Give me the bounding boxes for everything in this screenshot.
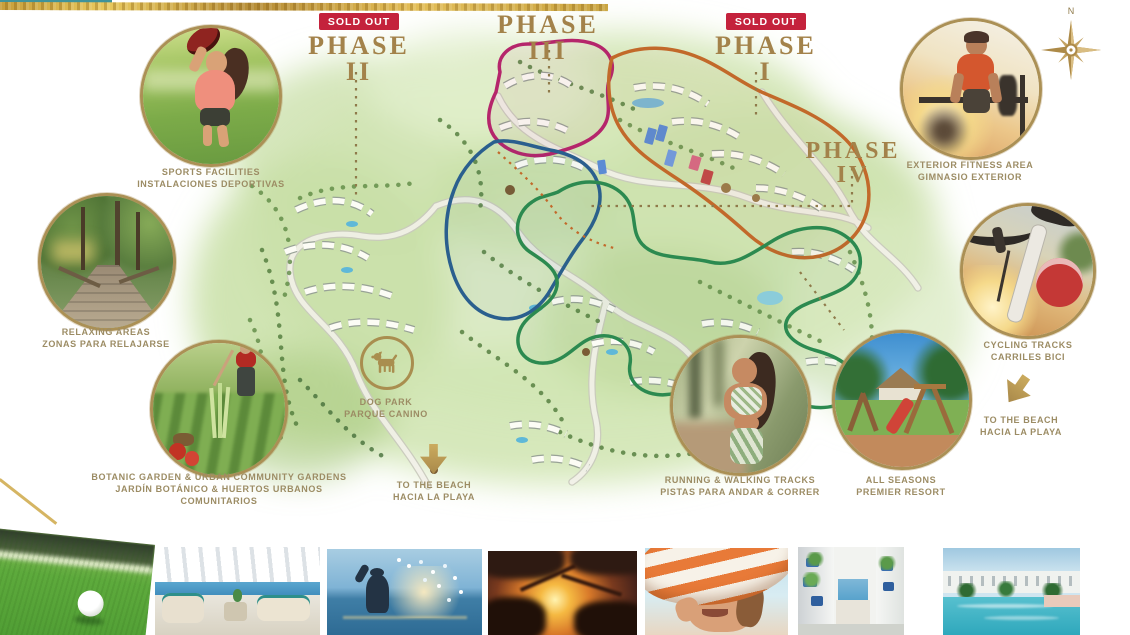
caption-sports-facilities: SPORTS FACILITIES INSTALACIONES DEPORTIV… xyxy=(101,166,321,190)
phase-2-title: PHASE II xyxy=(300,33,418,85)
resort-masterplan-page: SOLD OUT PHASE II PHASE III SOLD OUT PHA… xyxy=(0,0,1130,635)
gallery-photo-sea-splash xyxy=(327,549,482,635)
photo-exterior-fitness xyxy=(900,18,1042,160)
compass-north-label: N xyxy=(1068,6,1075,16)
caption-botanic-garden: BOTANIC GARDEN & URBAN COMMUNITY GARDENS… xyxy=(59,471,379,507)
gallery-photo-sea-view-terrace xyxy=(155,547,320,635)
phase-2-block: SOLD OUT PHASE II xyxy=(300,12,418,85)
caption-all-seasons-resort: ALL SEASONS PREMIER RESORT xyxy=(821,474,981,498)
photo-relaxing-areas xyxy=(38,193,176,331)
phase-1-block: SOLD OUT PHASE I xyxy=(708,12,824,85)
photo-sports-facilities xyxy=(140,25,282,167)
compass-rose: N xyxy=(1036,4,1106,84)
gallery-photo-golf-ball-on-green xyxy=(0,528,155,635)
caption-dog-park: DOG PARK PARQUE CANINO xyxy=(306,396,466,420)
photo-cycling-tracks xyxy=(960,203,1096,339)
gallery-photo-striped-sun-hat xyxy=(645,548,788,635)
caption-exterior-fitness: EXTERIOR FITNESS AREA GIMNASIO EXTERIOR xyxy=(870,159,1070,183)
caption-to-the-beach-right: TO THE BEACH HACIA LA PLAYA xyxy=(941,414,1101,438)
phase-3-block: PHASE III xyxy=(478,12,618,64)
photo-running-tracks xyxy=(670,335,811,476)
gallery-photo-resort-pool xyxy=(943,548,1080,635)
caption-running-tracks: RUNNING & WALKING TRACKS PISTAS PARA AND… xyxy=(640,474,840,498)
caption-to-the-beach-left: TO THE BEACH HACIA LA PLAYA xyxy=(354,479,514,503)
dog-icon xyxy=(370,349,404,377)
sold-out-badge-phase1: SOLD OUT xyxy=(726,13,806,30)
phase-3-title: PHASE III xyxy=(478,12,618,64)
photo-botanic-garden xyxy=(150,340,288,478)
sold-out-badge-phase2: SOLD OUT xyxy=(319,13,399,30)
caption-cycling-tracks: CYCLING TRACKS CARRILES BICI xyxy=(948,339,1108,363)
gallery-photo-mediterranean-alley xyxy=(798,547,904,635)
gallery-photo-sunset-palms xyxy=(488,551,637,635)
phase-1-title: PHASE I xyxy=(708,33,824,85)
dog-park-icon xyxy=(360,336,414,390)
